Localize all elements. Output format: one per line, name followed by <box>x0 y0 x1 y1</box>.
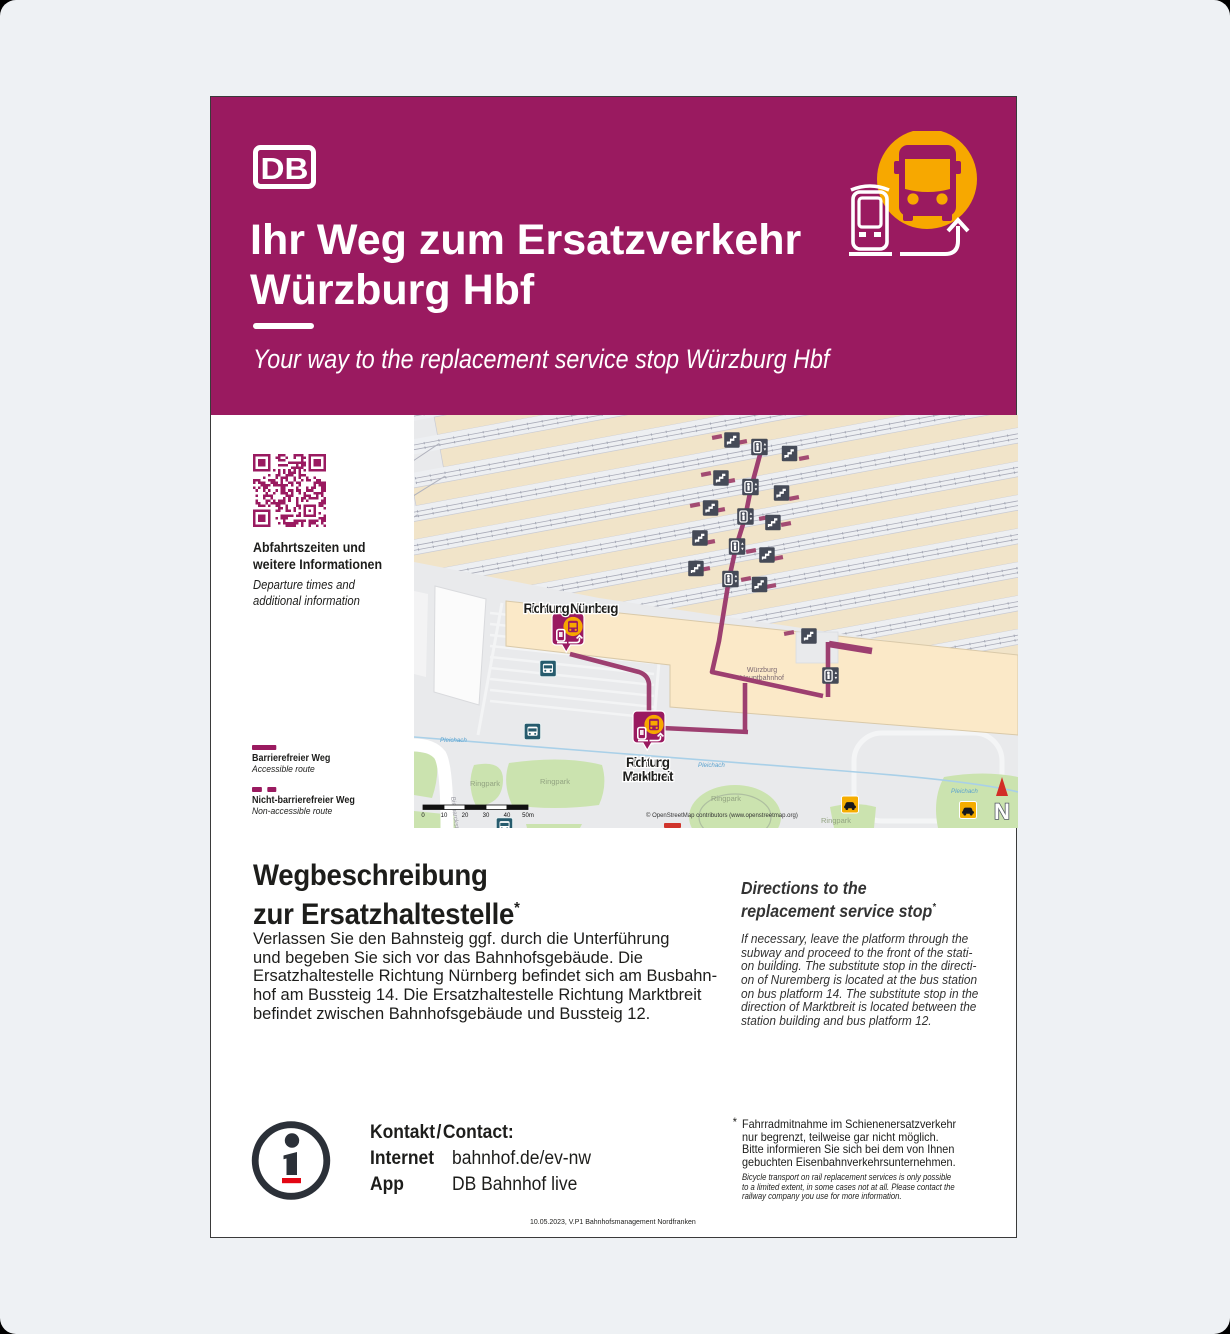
svg-text:40: 40 <box>504 813 511 819</box>
svg-text:N: N <box>994 799 1010 824</box>
svg-text:Richtung Nürnberg: Richtung Nürnberg <box>524 601 619 616</box>
svg-text:Pleichach: Pleichach <box>440 737 467 744</box>
svg-text:Richtung: Richtung <box>626 755 670 770</box>
svg-text:Ringpark: Ringpark <box>470 779 500 788</box>
svg-text:Würzburg: Würzburg <box>747 667 777 674</box>
svg-text:Ringpark: Ringpark <box>540 777 570 786</box>
svg-text:Ringpark: Ringpark <box>711 794 741 803</box>
svg-text:Marktbreit: Marktbreit <box>623 769 675 784</box>
svg-text:© OpenStreetMap contributors (: © OpenStreetMap contributors (www.openst… <box>646 812 798 819</box>
svg-text:20: 20 <box>462 813 469 819</box>
svg-text:DB: DB <box>261 151 309 186</box>
svg-text:Pleichach: Pleichach <box>698 762 725 769</box>
svg-text:10: 10 <box>441 813 448 819</box>
svg-text:Pleichach: Pleichach <box>951 788 978 795</box>
svg-text:30: 30 <box>483 813 490 819</box>
svg-text:50m: 50m <box>522 813 534 819</box>
svg-text:Ringpark: Ringpark <box>821 816 851 825</box>
